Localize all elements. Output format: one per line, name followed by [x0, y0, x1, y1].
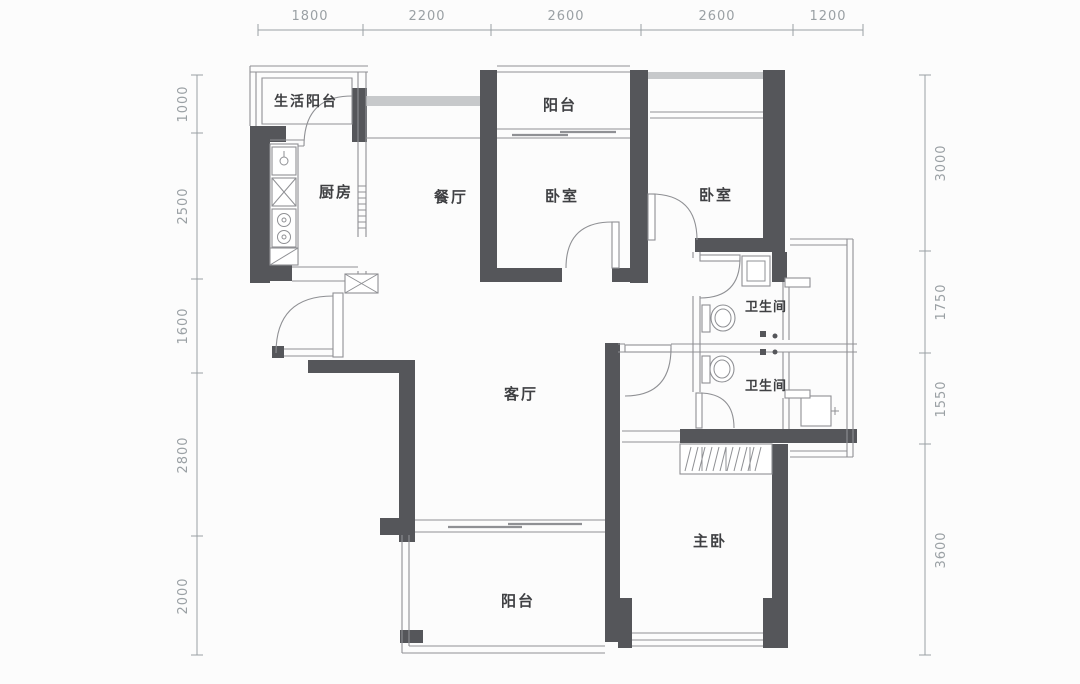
door-leaf-entry	[333, 293, 343, 357]
wall-entry-plate	[272, 346, 284, 358]
dim-label: 2200	[408, 9, 445, 24]
room-label-service-balcony: 生活阳台	[274, 93, 338, 110]
wall-kitchen-bottom	[250, 265, 292, 281]
wall-master-top	[680, 429, 857, 443]
stove-burners-icon	[272, 209, 296, 247]
wall-entry-horizontal	[308, 360, 415, 373]
door-swing-arc-icon	[566, 222, 612, 268]
door-swing-arc-icon	[699, 393, 734, 428]
doors	[276, 96, 740, 428]
room-label-bathroom-upper: 卫生间	[745, 299, 787, 315]
room-label-bedroom-east: 卧室	[699, 186, 733, 204]
dimension-line	[191, 75, 203, 655]
dim-label: 2000	[176, 577, 191, 614]
wall-service-balcony-post	[352, 88, 367, 142]
dim-label: 1800	[291, 9, 328, 24]
room-label-living: 客厅	[503, 385, 538, 403]
room-label-bedroom-north: 卧室	[545, 187, 579, 205]
toilet-icon	[702, 356, 734, 383]
dimension-chain-left: 1000 2500 1600 2800 2000	[176, 75, 203, 655]
wall-master-bottom-left	[618, 598, 632, 648]
dimension-chain-right: 3000 1750 1550 3600	[919, 75, 949, 655]
wall-bedroom-east-right	[763, 70, 785, 252]
wardrobe-hatch-icon	[680, 444, 772, 474]
wall-kitchen-left	[250, 126, 270, 283]
door-swing-arc-icon	[276, 296, 333, 353]
room-label-bathroom-lower: 卫生间	[745, 378, 787, 394]
bedroom-east-window	[650, 112, 763, 118]
duct-shaft-x-icon	[345, 274, 378, 293]
room-label-dining: 餐厅	[434, 188, 468, 206]
wall-bedrooms-divider	[630, 70, 648, 283]
dim-label: 2600	[547, 9, 584, 24]
wall-master-bottom-right	[763, 598, 788, 648]
door-leaf-bathroom-upper	[700, 255, 740, 261]
room-label-south-balcony: 阳台	[501, 592, 535, 610]
dimension-line	[258, 24, 863, 36]
kitchen-counter	[270, 144, 298, 265]
door-leaf-bathroom-lower	[696, 393, 702, 428]
basin-faucet-icon	[760, 331, 778, 355]
walls	[250, 70, 857, 648]
door-swing-arc-icon	[625, 348, 671, 396]
north-balcony-sliding-window	[512, 132, 616, 135]
toilet-icon	[702, 305, 735, 332]
wall-bedroom-north-bottom	[480, 268, 562, 282]
counter-x-cabinet-icon	[272, 178, 296, 206]
dim-label: 1000	[176, 85, 191, 122]
wall-balcony-stub	[380, 518, 399, 535]
bathroom-left-wall	[693, 252, 700, 392]
water-heater-icon	[742, 256, 770, 286]
bath-shelf	[785, 390, 810, 398]
dim-label: 1750	[934, 283, 949, 320]
dim-label: 2500	[176, 187, 191, 224]
washer-tub-icon	[801, 396, 839, 426]
dimension-chain-top: 1800 2200 2600 2600 1200	[258, 9, 863, 36]
entry-threshold	[284, 349, 333, 356]
wall-living-right	[605, 343, 620, 642]
south-balcony-sliding-door	[448, 524, 582, 527]
dim-label: 3000	[934, 144, 949, 181]
dim-label: 2600	[698, 9, 735, 24]
door-leaf-bedroom-north	[612, 222, 619, 268]
wall-bedroom-north-left	[480, 70, 497, 282]
door-leaf-corridor	[625, 345, 671, 352]
dim-label: 1200	[809, 9, 846, 24]
bath-shelf	[785, 278, 810, 287]
south-balcony-railing	[402, 520, 605, 653]
corner-counter	[270, 248, 298, 265]
dimension-line	[919, 75, 931, 655]
window-band-dining	[366, 96, 480, 106]
wall-bedroom-east-bottom	[695, 238, 777, 252]
room-label-kitchen: 厨房	[319, 183, 353, 201]
door-swing-arc-icon	[700, 258, 740, 298]
window-band-bedroom-east	[648, 72, 763, 79]
dim-label: 3600	[934, 531, 949, 568]
dim-label: 2800	[176, 436, 191, 473]
door-leaf-bedroom-east	[648, 194, 655, 240]
kitchen-sink-icon	[272, 147, 296, 175]
door-swing-arc-icon	[651, 194, 697, 240]
room-label-master-bedroom: 主卧	[693, 532, 727, 550]
dim-label: 1550	[934, 380, 949, 417]
room-label-north-balcony: 阳台	[543, 96, 577, 114]
floor-plan-canvas: 1800 2200 2600 2600 1200 1000 2500 1600 …	[0, 0, 1080, 684]
wall-balcony-bottom-corner	[400, 630, 423, 643]
dim-label: 1600	[176, 307, 191, 344]
wall-living-left	[399, 360, 415, 542]
